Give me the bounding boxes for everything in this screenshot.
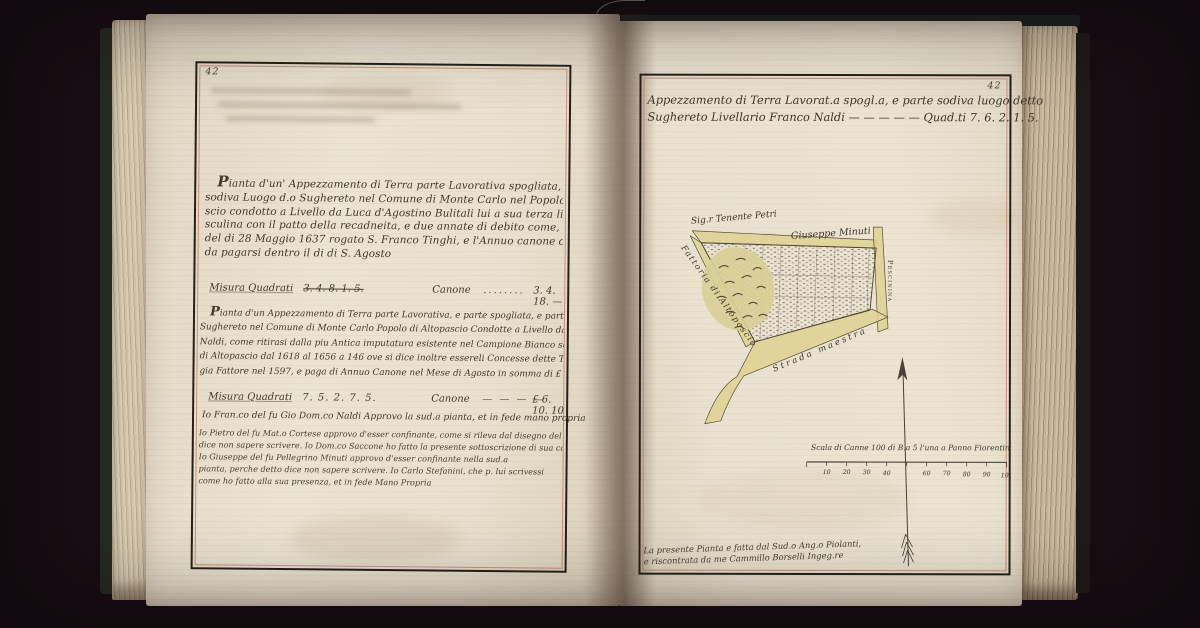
scale-tick: 60: [923, 470, 931, 477]
road-label-pescinina: Pescinina: [886, 260, 894, 303]
canone-value: 3. 4. 18. —: [533, 285, 567, 307]
measure-row-2: Misura Quadrati 7. 5. 2. 7. 5. Canone — …: [194, 391, 566, 411]
first-plan-description: Pianta d'un' Appezzamento di Terra parte…: [205, 175, 564, 263]
measure-row-1: Misura Quadrati 3. 4. 8. 1. 5. Canone ..…: [195, 282, 567, 302]
manuscript-line: gia Fattore nel 1597, e paga di Annuo Ca…: [199, 364, 563, 382]
scale-tick: 100: [1001, 472, 1010, 479]
measure-figures: 7. 5. 2. 7. 5.: [302, 392, 377, 404]
book-cover-right-edge: [1076, 33, 1090, 593]
scale-tick: 20: [842, 469, 851, 476]
dot-leader: ........: [483, 285, 525, 296]
second-plan-description: Pianta d'un Appezzamento di Terra parte …: [199, 305, 564, 382]
left-page-text: Pianta d'un' Appezzamento di Terra parte…: [193, 63, 570, 571]
struck-figures: 3. 4. 8. 1. 5.: [303, 283, 364, 295]
scale-bar: Scala di Canne 100 di B.a 5 l'una a Pann…: [807, 443, 1010, 479]
scale-tick: 40: [882, 470, 891, 477]
scale-tick: 90: [983, 471, 991, 478]
left-page-frame: 42 Pianta d'un' Appezzamento di Terra pa…: [191, 61, 572, 573]
book-photo: 42 Pianta d'un' Appezzamento di Terra pa…: [0, 0, 1200, 628]
scale-tick: 30: [863, 469, 871, 476]
canone-label: Canone: [432, 284, 471, 295]
canone-label: Canone: [431, 393, 470, 404]
neighbor-label-tenente-petri: Sig.r Tenente Petri: [691, 209, 778, 226]
measure-label: Misura Quadrati: [209, 282, 293, 294]
attestation-block: Io Pietro del fu Mat.o Cortese approvo d…: [198, 426, 563, 489]
scale-tick: 80: [963, 471, 971, 478]
scale-caption: Scala di Canne 100 di B.a 5 l'una a Pann…: [811, 443, 1009, 452]
cadastral-map: Sig.r Tenente Petri Giuseppe Minuti Fatt…: [640, 76, 1009, 574]
owner-approval-line: Io Fran.co del fu Gio Dom.co Naldi Appro…: [202, 410, 586, 424]
measure-label: Misura Quadrati: [208, 391, 292, 403]
scale-tick: 10: [823, 469, 831, 476]
right-page-frame: 42 Appezzamento di Terra Lavorat.a spogl…: [638, 74, 1011, 576]
scale-tick: 70: [943, 470, 951, 477]
